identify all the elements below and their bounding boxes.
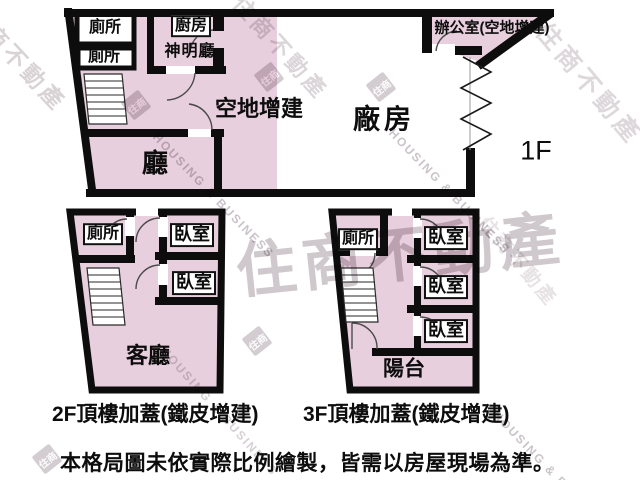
room-label-shrine-hall: 神明廳 [164, 44, 215, 60]
room-label-toilet-3f: 廁所 [338, 228, 378, 250]
room-label-toilet-2f: 廁所 [83, 223, 123, 245]
room-label-hall: 廳 [142, 150, 168, 176]
room-label-toilet-1f-b: 廁所 [88, 49, 120, 65]
floor2-caption: 2F頂樓加蓋(鐵皮增建) [52, 398, 259, 428]
room-label-bedroom-3f-b: 臥室 [424, 275, 468, 299]
stairs-icon [341, 268, 378, 322]
room-label-balcony: 陽台 [383, 359, 425, 380]
stairs-icon [87, 268, 125, 325]
room-label-living-room: 客廳 [126, 345, 170, 367]
room-label-kitchen: 廚房 [171, 15, 211, 37]
room-label-toilet-1f-a: 廁所 [89, 20, 121, 36]
room-label-bedroom-2f-b: 臥室 [172, 271, 216, 295]
floor1-tag: 1F [520, 136, 552, 167]
floorplan-canvas: 廁所 廁所 廚房 神明廳 空地增建 廳 廠房 辦公室(空地增建) 1F 廁所 臥… [0, 0, 640, 480]
room-label-office: 辦公室(空地增建) [435, 21, 550, 36]
stairs-icon [84, 74, 127, 124]
room-label-bedroom-3f-c: 臥室 [424, 319, 468, 343]
rolling-shutter-icon [461, 57, 491, 150]
room-label-open-land-addition: 空地增建 [215, 98, 303, 120]
room-label-bedroom-3f-a: 臥室 [424, 226, 468, 250]
room-label-factory: 廠房 [353, 107, 415, 134]
floor3-caption: 3F頂樓加蓋(鐵皮增建) [303, 398, 510, 428]
room-label-bedroom-2f-a: 臥室 [170, 223, 214, 247]
disclaimer-text: 本格局圖未依實際比例繪製，皆需以房屋現場為準。 [60, 447, 555, 477]
